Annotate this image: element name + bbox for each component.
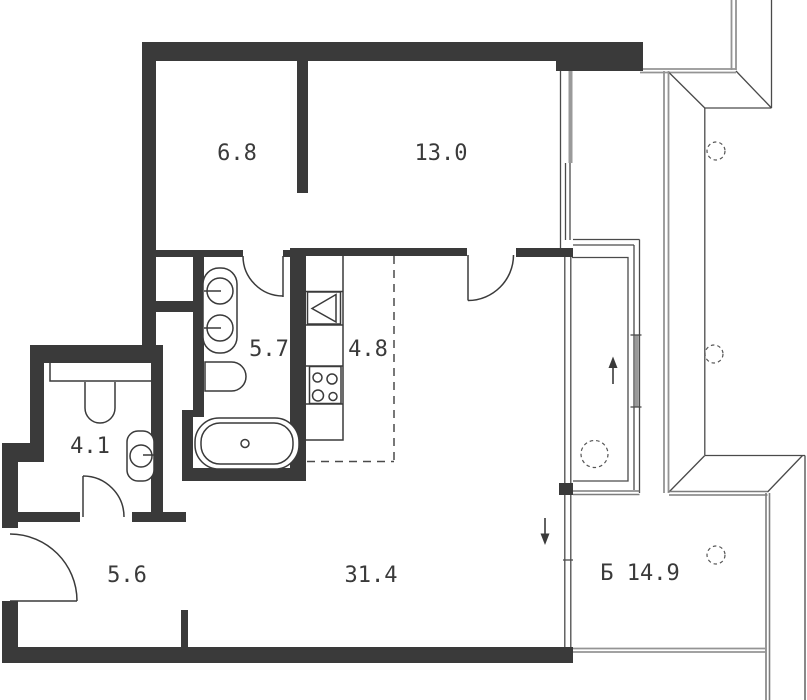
room-label-living-room: 31.4	[345, 563, 398, 588]
wall-segment	[181, 610, 188, 648]
wall-segment	[2, 647, 573, 663]
floor-plan-canvas: 6.8 13.0 5.7 4.8 4.1 5.6 31.4 Б 14.9	[0, 0, 807, 700]
wall-segment	[156, 250, 243, 257]
room-label-wc: 4.1	[70, 434, 110, 459]
wall-segment	[297, 61, 308, 193]
room-label-bedroom-top-left: 6.8	[217, 141, 257, 166]
room-label-kitchen: 4.8	[348, 337, 388, 362]
room-label-bathroom: 5.7	[249, 337, 289, 362]
wall-segment	[2, 443, 44, 462]
room-label-hallway: 5.6	[107, 563, 147, 588]
wc-toilet	[127, 431, 154, 481]
wall-segment	[2, 462, 18, 528]
wall-segment	[30, 345, 44, 448]
wall-segment	[559, 483, 573, 495]
wall-segment	[156, 301, 204, 312]
bathroom-toilet	[205, 362, 246, 391]
wall-segment	[556, 42, 643, 71]
room-label-balcony: Б 14.9	[600, 561, 679, 586]
wall-segment	[306, 248, 467, 256]
wall-segment	[516, 248, 573, 257]
wall-segment	[182, 468, 306, 481]
wall-segment	[132, 512, 186, 522]
room-label-bedroom-top-right: 13.0	[415, 141, 468, 166]
wall-segment	[142, 42, 156, 359]
floor-plan: 6.8 13.0 5.7 4.8 4.1 5.6 31.4 Б 14.9	[0, 0, 807, 700]
wall-segment	[30, 345, 163, 363]
wall-segment	[18, 512, 80, 522]
